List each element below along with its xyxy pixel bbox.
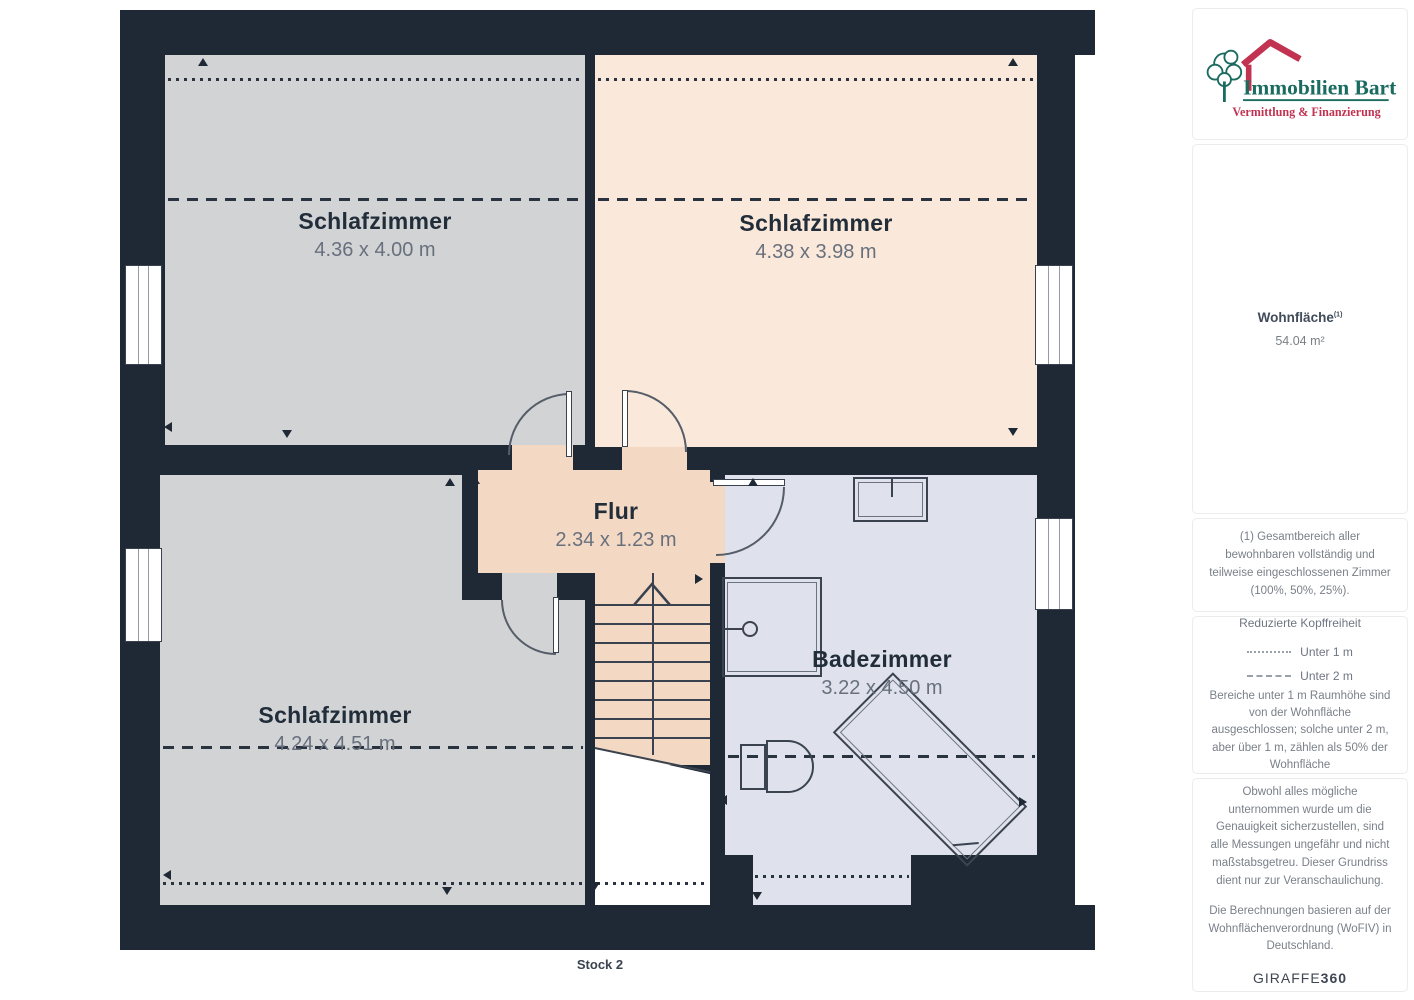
disclaimer-card: Obwohl alles mögliche unternommen wurde … [1192, 778, 1408, 992]
area-marker-arrow [1008, 428, 1018, 436]
headroom-line-under-1m [598, 78, 1035, 81]
area-marker-arrow [719, 795, 727, 805]
window [1035, 265, 1073, 365]
room-label-bedroom-top-right: Schlafzimmer 4.38 x 3.98 m [646, 210, 986, 264]
area-marker-arrow [470, 476, 480, 484]
wall-extension-bottom-right [1075, 905, 1095, 950]
sink [853, 477, 928, 522]
giraffe360-brand: GIRAFFE360 [1253, 970, 1347, 986]
footnote-card: (1) Gesamtbereich aller bewohnbaren voll… [1192, 518, 1408, 612]
area-marker-arrow [590, 882, 600, 890]
headroom-line-under-1m [755, 875, 909, 878]
area-footnote-text: (1) Gesamtbereich aller bewohnbaren voll… [1207, 529, 1393, 600]
door-leaf [622, 390, 628, 447]
door-leaf [553, 597, 559, 653]
headroom-line-under-2m [168, 198, 582, 201]
door-opening [502, 573, 557, 600]
floorplan: Schlafzimmer 4.36 x 4.00 m Schlafzimmer … [120, 10, 1075, 950]
dashed-line-sample [1247, 675, 1291, 677]
area-marker-arrow [1008, 58, 1018, 66]
legend-description: Bereiche unter 1 m Raumhöhe sind von der… [1207, 688, 1393, 774]
area-marker-arrow [1019, 797, 1027, 807]
room-label-bathroom: Badezimmer 3.22 x 4.50 m [732, 646, 1032, 700]
area-marker-arrow [467, 560, 477, 568]
room-label-bedroom-top-left: Schlafzimmer 4.36 x 4.00 m [205, 208, 545, 262]
floor-level-label: Stock 2 [420, 957, 780, 972]
headroom-line-under-1m [597, 882, 708, 885]
disclaimer-text-1: Obwohl alles mögliche unternommen wurde … [1207, 784, 1393, 891]
legend-title: Reduzierte Kopffreiheit [1239, 616, 1361, 630]
logo-subtitle: Vermittlung & Finanzierung [1232, 105, 1380, 119]
area-marker-arrow [282, 430, 292, 438]
logo-title: Immobilien Bart [1243, 76, 1397, 100]
wall-extension-top-right [1075, 10, 1095, 55]
legend-item-under-1m: Unter 1 m [1247, 645, 1353, 659]
living-area-value: 54.04 m² [1275, 334, 1324, 348]
shower-drain [742, 621, 758, 637]
agency-logo: Immobilien Bart Vermittlung & Finanzieru… [1202, 24, 1398, 124]
headroom-line-under-1m [163, 882, 583, 885]
room-label-bedroom-bottom-left: Schlafzimmer 4.24 x 4.51 m [165, 702, 505, 756]
room-bathroom-extension [753, 855, 911, 905]
living-area-label: Wohnfläche(1) [1258, 310, 1343, 325]
area-marker-arrow [748, 478, 758, 486]
logo-roof [1243, 42, 1300, 64]
floorplan-page: Schlafzimmer 4.36 x 4.00 m Schlafzimmer … [0, 0, 1414, 1000]
headroom-line-under-2m [598, 198, 1035, 201]
window [125, 548, 162, 642]
legend-item-under-2m: Unter 2 m [1247, 669, 1353, 683]
legend-card: Reduzierte Kopffreiheit Unter 1 m Unter … [1192, 616, 1408, 774]
info-sidebar: Immobilien Bart Vermittlung & Finanzieru… [1192, 0, 1410, 1000]
disclaimer-text-2: Die Berechnungen basieren auf der Wohnfl… [1207, 903, 1393, 956]
logo-card: Immobilien Bart Vermittlung & Finanzieru… [1192, 8, 1408, 140]
living-area-card: Wohnfläche(1) 54.04 m² [1192, 144, 1408, 514]
room-bedroom-bottom-left [160, 475, 462, 905]
window [125, 265, 162, 365]
stair-direction-arrow-icon [632, 581, 672, 607]
area-marker-arrow [695, 574, 703, 584]
window [1035, 518, 1073, 610]
headroom-line-under-1m [168, 78, 582, 81]
area-marker-arrow [445, 478, 455, 486]
area-marker-arrow [164, 422, 172, 432]
area-marker-arrow [163, 870, 171, 880]
dotted-line-sample [1247, 651, 1291, 653]
area-marker-arrow [198, 58, 208, 66]
room-label-hallway: Flur 2.34 x 1.23 m [516, 498, 716, 552]
staircase [595, 573, 710, 765]
area-marker-arrow [752, 892, 762, 900]
area-marker-arrow [442, 887, 452, 895]
toilet [740, 744, 766, 790]
door-leaf [566, 391, 572, 457]
